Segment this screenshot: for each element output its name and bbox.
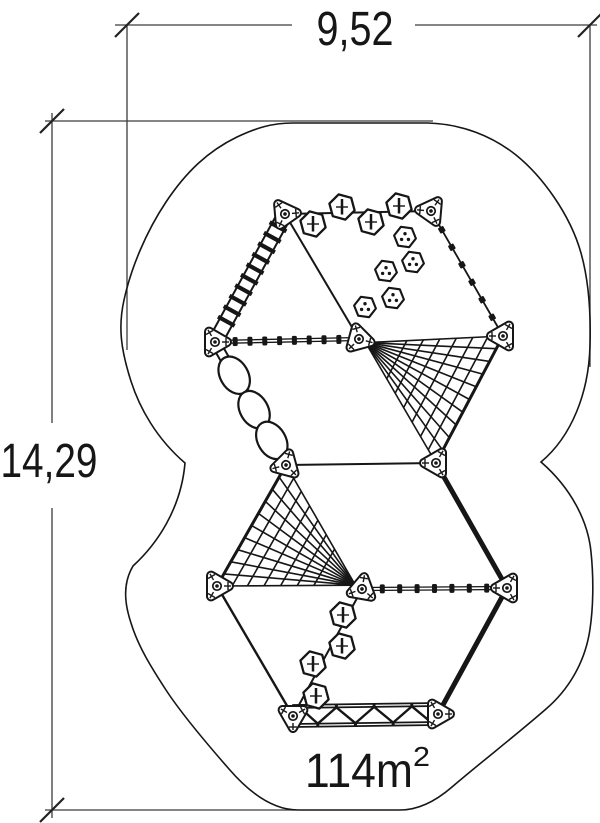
stone-dot (407, 238, 410, 241)
frame-beam (438, 588, 507, 714)
rope-bead (432, 584, 437, 593)
post-center-dot (505, 586, 509, 590)
anchor-post (489, 324, 512, 348)
climbing-grip-stone (329, 633, 354, 658)
rope-bead (336, 335, 341, 344)
climbing-grip-stone (386, 193, 411, 218)
stone-dot (391, 293, 394, 296)
stone-dot (415, 263, 418, 266)
anchor-post (268, 201, 300, 232)
net-line (366, 336, 503, 343)
hex-outline (382, 288, 404, 308)
ladder-rung (241, 275, 258, 284)
rope-bead (307, 335, 312, 344)
stepping-stone (354, 297, 376, 317)
stepping-stone (375, 261, 397, 281)
post-center-dot (436, 712, 440, 716)
anchor-post (344, 322, 373, 350)
climbing-grip-stone (330, 602, 355, 627)
stone-dot (388, 272, 391, 275)
rope-clamp (478, 296, 486, 304)
net-line (272, 489, 355, 585)
ladder-rung (247, 264, 264, 273)
net-line (366, 343, 436, 463)
rope-bead (292, 336, 297, 345)
hex-outline (394, 227, 416, 247)
stone-dot (411, 257, 414, 260)
hex-outline (354, 297, 376, 317)
rope-bead (397, 584, 402, 593)
post-center-dot (434, 461, 438, 465)
rope-bead (449, 584, 454, 593)
post-center-dot (501, 334, 505, 338)
structure-layer (206, 193, 516, 730)
height-dimension-label: 14,29 (1, 435, 98, 488)
rope-clamp (448, 243, 456, 251)
climbing-grip-stone (300, 211, 325, 236)
rope-bead (277, 336, 282, 345)
anchor-post (429, 702, 452, 726)
hex-outline (375, 261, 397, 281)
rope-bead (484, 584, 489, 593)
post-center-dot (291, 714, 295, 718)
ladder-rung (229, 296, 246, 305)
stone-dot (400, 238, 403, 241)
rope-clamp (488, 313, 496, 321)
stone-dot (367, 308, 370, 311)
ladder-rung (258, 243, 275, 252)
anchor-post (416, 198, 448, 229)
anchor-post (493, 576, 516, 600)
playground-plan-drawing: 9,5214,29114m2 (0, 0, 600, 823)
rope-bead (467, 584, 472, 593)
post-center-dot (213, 340, 217, 344)
anchor-post (208, 574, 231, 598)
rope-line (217, 586, 293, 716)
rope-bead (247, 337, 252, 346)
stone-dot (395, 299, 398, 302)
anchor-post (422, 451, 445, 475)
climbing-grip-stone (300, 651, 325, 676)
stepping-stone (394, 227, 416, 247)
drawing-page: 9,5214,29114m2 (0, 0, 600, 823)
stone-dot (408, 263, 411, 266)
stone-dot (388, 299, 391, 302)
rope-clamp (458, 261, 466, 269)
area-label: 114m (305, 745, 413, 798)
stone-dot (403, 232, 406, 235)
rope-bead (321, 335, 326, 344)
stone-dot (363, 302, 366, 305)
post-center-dot (215, 584, 219, 588)
ladder-rung (218, 317, 235, 326)
rope-line (285, 214, 359, 339)
stone-dot (360, 308, 363, 311)
rope-bead (262, 336, 267, 345)
rope-clamp (468, 278, 476, 286)
ladder-rung (252, 254, 269, 263)
width-dimension-label: 9,52 (317, 3, 394, 56)
hex-outline (402, 252, 424, 272)
stone-dot (384, 266, 387, 269)
rope-clamp (438, 226, 446, 234)
net-line (217, 585, 355, 586)
frame-beam (436, 463, 507, 588)
stepping-stone (402, 252, 424, 272)
net-line (265, 501, 355, 585)
climbing-grip-stone (329, 194, 354, 219)
rope-bead (415, 584, 420, 593)
rope-line (286, 463, 436, 465)
ladder-rung (235, 285, 252, 294)
rope-bead (380, 584, 385, 593)
ladder-rung (224, 306, 241, 315)
area-superscript: 2 (413, 741, 430, 772)
rope-bead (233, 337, 238, 346)
net-line (366, 343, 450, 438)
stepping-stone (382, 288, 404, 308)
bridge-rail (293, 725, 438, 727)
stone-dot (381, 272, 384, 275)
ladder-rung (264, 233, 281, 242)
